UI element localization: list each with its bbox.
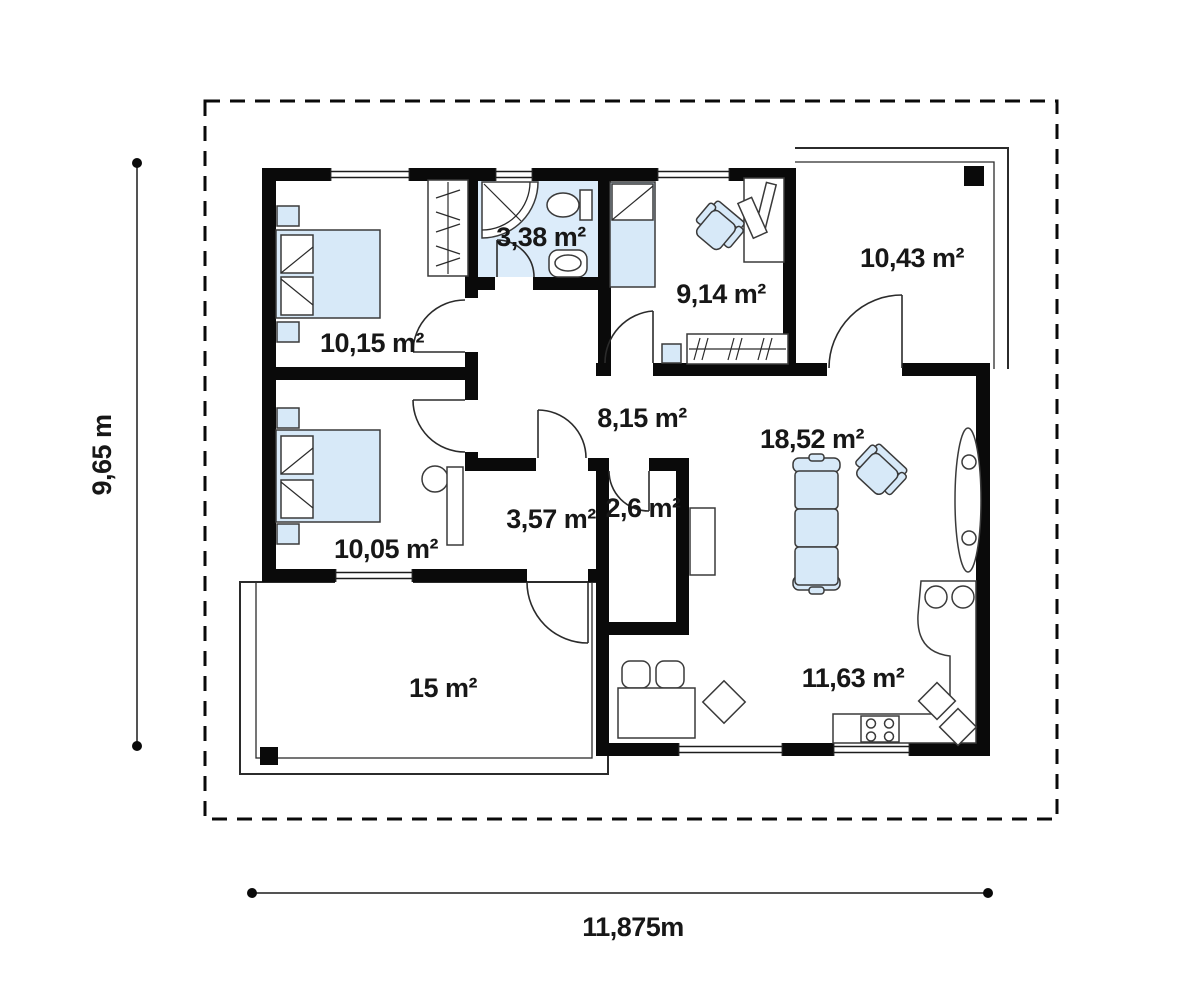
door-arc [829,295,902,368]
room-label-bedroom-1: 10,15 m² [320,328,425,358]
dimension-width-label: 11,875m [582,912,684,942]
wardrobe-icon [428,180,468,276]
room-label-living: 18,52 m² [760,424,865,454]
door-arc [538,410,586,458]
dining-table-icon [618,661,745,738]
stool-icon [662,344,681,363]
console-table-icon [955,428,981,572]
floor-plan-svg: 10,15 m² 3,38 m² 9,14 m² 10,43 m² 8,15 m… [0,0,1185,1000]
sofa-icon [793,454,840,594]
kitchen-sink-icon [925,586,947,608]
clothes-rack-icon [687,334,788,364]
room-label-garage: 10,43 m² [860,243,965,273]
kitchen-sink-icon [952,586,974,608]
nightstand-icon [277,206,299,226]
sink-icon [549,250,587,277]
window-icon [495,167,533,182]
double-bed-icon [276,408,380,544]
door-arc [413,400,465,452]
window-icon [678,742,783,757]
window-icon [330,167,410,182]
nightstand-icon [277,524,299,544]
floor-plan-page: 10,15 m² 3,38 m² 9,14 m² 10,43 m² 8,15 m… [0,0,1185,1000]
room-label-kitchen: 11,63 m² [802,663,905,693]
room-label-terrace: 15 m² [409,673,478,703]
window-icon [657,167,730,182]
door-arc [527,582,588,643]
room-label-vestibule: 3,57 m² [506,504,596,534]
door-arc [605,311,653,363]
dimension-height: 9,65 m [87,158,142,751]
nightstand-icon [277,408,299,428]
room-label-bedroom-2: 10,05 m² [334,534,439,564]
nightstand-icon [277,322,299,342]
stove-icon [861,716,899,742]
side-table-icon [422,466,448,492]
desk-icon [447,467,463,545]
room-label-bathroom: 3,38 m² [496,222,586,252]
room-label-storage: 2,6 m² [605,493,681,523]
room-label-hall: 8,15 m² [597,403,687,433]
dimension-width: 11,875m [247,888,993,942]
window-icon [335,568,413,583]
window-icon [833,742,910,757]
cabinet-icon [690,508,715,575]
garage-pillar [964,166,984,186]
room-label-office: 9,14 m² [676,279,766,309]
double-bed-icon [276,206,380,342]
dimension-height-label: 9,65 m [87,414,117,495]
desk-icon [738,178,784,262]
toilet-icon [547,190,592,220]
terrace-pillar [260,747,278,765]
single-bed-icon [610,182,655,287]
